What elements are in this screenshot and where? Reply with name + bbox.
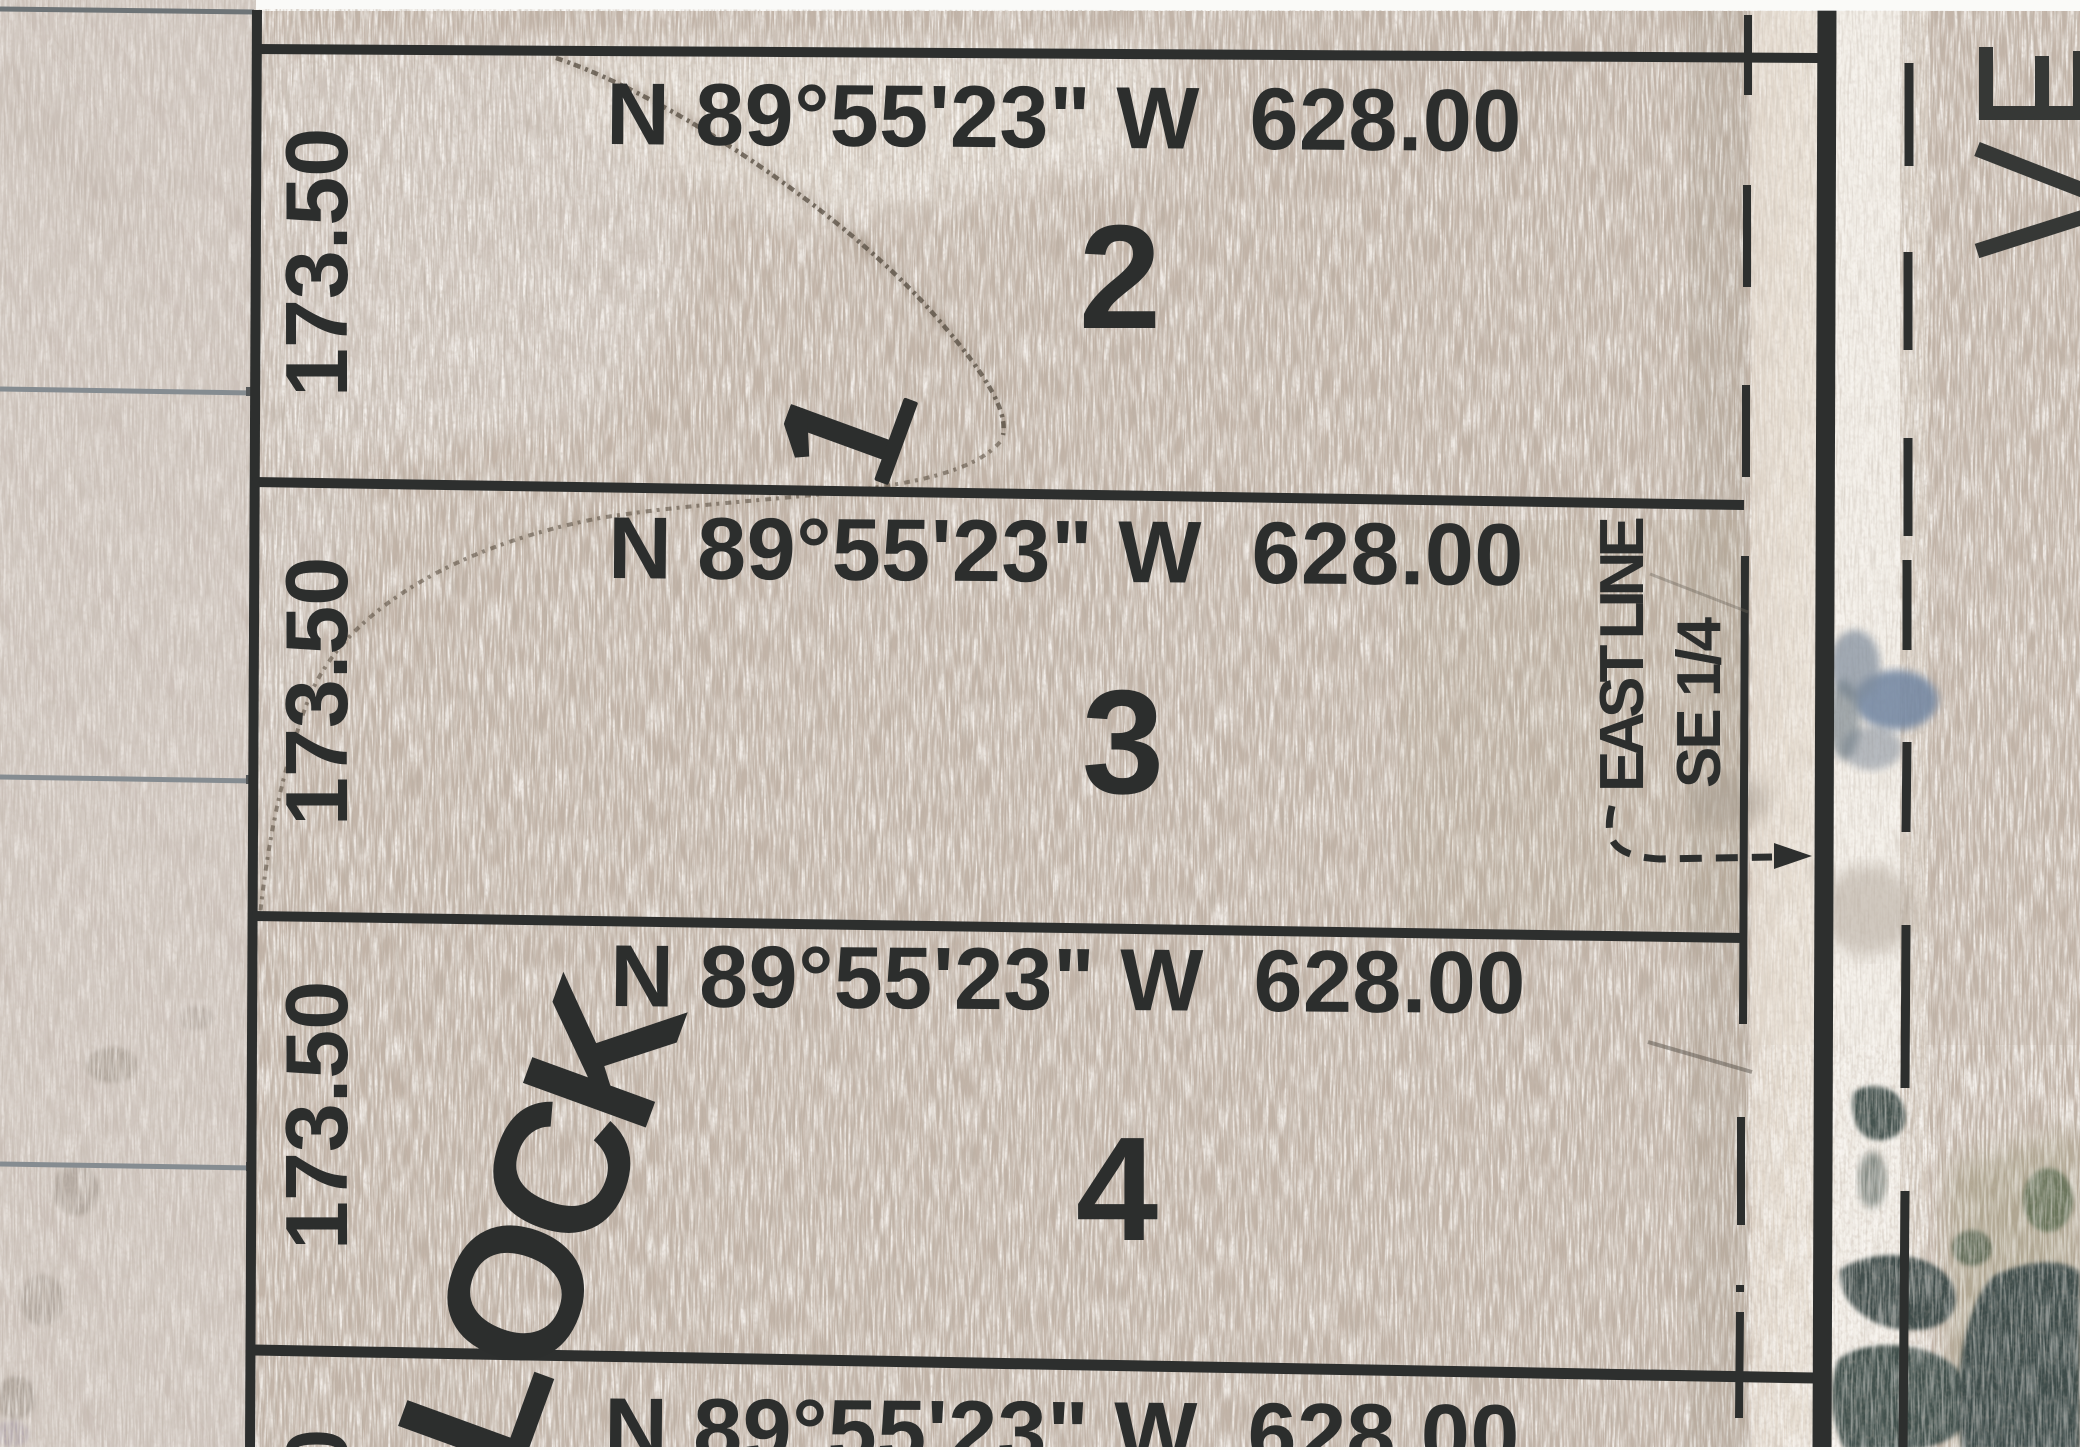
svg-text:173.50: 173.50 [267,128,366,397]
svg-text:SE 1/4: SE 1/4 [1665,616,1734,788]
svg-text:N 89°55'23" W 628.00: N 89°55'23" W 628.00 [604,1379,1520,1450]
svg-text:173.50: 173.50 [267,557,366,826]
svg-text:N 89°55'23" W 628.00: N 89°55'23" W 628.00 [608,498,1524,604]
svg-text:4: 4 [1076,1107,1158,1272]
svg-text:N 89°55'23" W 628.00: N 89°55'23" W 628.00 [606,64,1522,170]
svg-text:3: 3 [1082,660,1164,825]
svg-text:173.50: 173.50 [267,981,366,1250]
svg-text:2: 2 [1079,195,1161,360]
svg-text:N 89°55'23" W 628.00: N 89°55'23" W 628.00 [610,926,1526,1032]
svg-text:EAST LINE: EAST LINE [1588,519,1657,792]
